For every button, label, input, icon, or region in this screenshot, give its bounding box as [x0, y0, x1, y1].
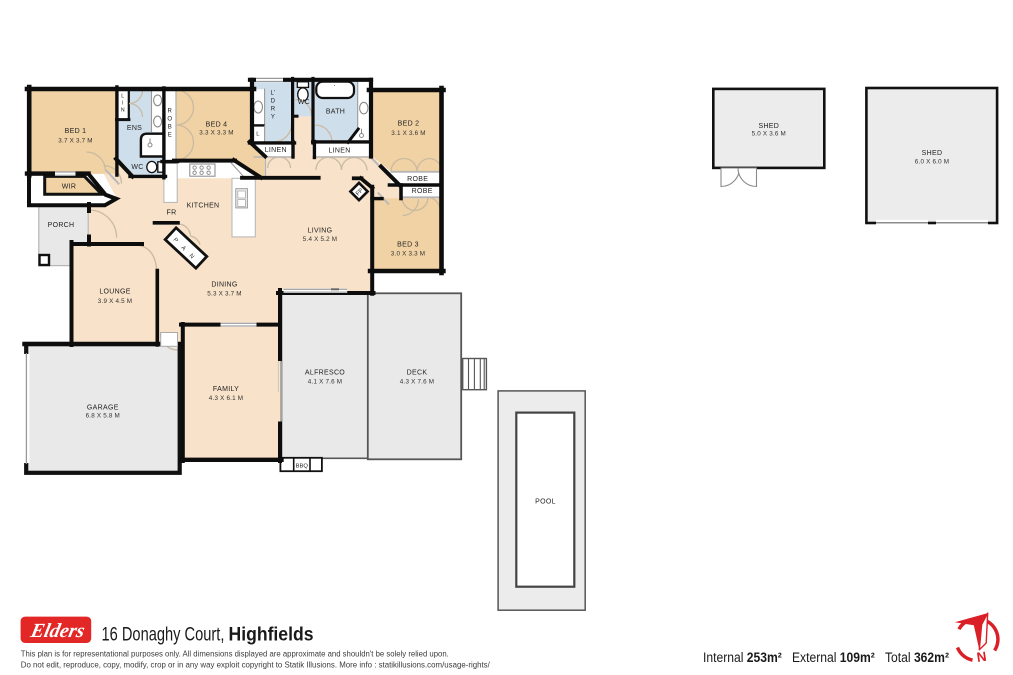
svg-text:L: L — [121, 94, 124, 100]
svg-text:3.7 X 3.7 M: 3.7 X 3.7 M — [58, 138, 92, 145]
svg-text:WC: WC — [131, 164, 143, 171]
svg-text:BED 4: BED 4 — [206, 121, 228, 128]
svg-text:O: O — [167, 117, 172, 123]
svg-text:B: B — [168, 125, 172, 131]
svg-text:6.8 X 5.8 M: 6.8 X 5.8 M — [86, 413, 120, 420]
svg-text:LINEN: LINEN — [265, 147, 287, 154]
svg-text:LIVING: LIVING — [308, 227, 333, 234]
svg-text:WIR: WIR — [62, 184, 77, 191]
svg-text:16 Donaghy Court,: 16 Donaghy Court, — [102, 624, 229, 646]
svg-text:Do not edit, reproduce, copy,: Do not edit, reproduce, copy, modify, cr… — [21, 660, 491, 669]
svg-text:Internal 253m² External 109m: Internal 253m² External 109m² Total 362m… — [703, 650, 949, 665]
svg-text:3.3 X 3.3 M: 3.3 X 3.3 M — [199, 129, 233, 136]
svg-text:FAMILY: FAMILY — [213, 386, 239, 393]
svg-text:5.4 X 5.2 M: 5.4 X 5.2 M — [303, 236, 337, 243]
svg-text:3.1 X 3.6 M: 3.1 X 3.6 M — [391, 130, 425, 137]
svg-text:ALFRESCO: ALFRESCO — [305, 369, 345, 376]
svg-text:DINING: DINING — [211, 281, 237, 288]
svg-text:PORCH: PORCH — [48, 222, 75, 229]
svg-text:4.3 X 6.1 M: 4.3 X 6.1 M — [209, 395, 243, 402]
svg-text:GARAGE: GARAGE — [87, 404, 119, 411]
svg-text:WC: WC — [298, 99, 310, 106]
svg-text:L: L — [256, 132, 260, 138]
svg-text:ENS: ENS — [127, 125, 142, 132]
svg-text:3.9 X 4.5 M: 3.9 X 4.5 M — [98, 298, 132, 305]
svg-text:SHED: SHED — [922, 150, 943, 157]
svg-text:Elders: Elders — [28, 620, 87, 642]
svg-text:BED 3: BED 3 — [397, 241, 419, 248]
svg-text:DECK: DECK — [407, 369, 428, 376]
svg-text:4.1 X 7.6 M: 4.1 X 7.6 M — [308, 379, 342, 386]
svg-text:4.3 X 7.6 M: 4.3 X 7.6 M — [400, 379, 434, 386]
svg-text:N: N — [121, 108, 125, 114]
svg-text:I: I — [122, 101, 124, 107]
svg-text:N: N — [976, 649, 988, 665]
svg-text:BATH: BATH — [326, 108, 345, 115]
svg-text:E: E — [168, 133, 172, 139]
svg-text:KITCHEN: KITCHEN — [187, 203, 220, 210]
svg-text:BED 2: BED 2 — [398, 120, 420, 127]
svg-text:5.3 X 3.7 M: 5.3 X 3.7 M — [207, 290, 241, 297]
svg-text:Y: Y — [271, 115, 275, 121]
svg-text:R: R — [168, 109, 173, 115]
svg-text:This plan is for representatio: This plan is for representational purpos… — [21, 650, 449, 659]
svg-text:LOUNGE: LOUNGE — [99, 289, 130, 296]
svg-text:5.0 X 3.6 M: 5.0 X 3.6 M — [752, 131, 786, 138]
svg-text:3.0 X 3.3 M: 3.0 X 3.3 M — [391, 250, 425, 257]
svg-text:POOL: POOL — [535, 499, 556, 506]
svg-text:SHED: SHED — [758, 123, 779, 130]
svg-text:LINEN: LINEN — [328, 147, 350, 154]
svg-text:R: R — [271, 107, 276, 113]
svg-text:BBQ: BBQ — [296, 464, 309, 470]
svg-text:L': L' — [271, 91, 276, 97]
svg-text:D: D — [271, 99, 276, 105]
svg-text:Highfields: Highfields — [229, 624, 314, 646]
svg-text:BED 1: BED 1 — [65, 128, 87, 135]
svg-text:ROBE: ROBE — [407, 176, 428, 183]
svg-text:ROBE: ROBE — [412, 188, 433, 195]
svg-text:6.0 X 6.0 M: 6.0 X 6.0 M — [915, 158, 949, 165]
svg-text:FR: FR — [167, 209, 177, 216]
